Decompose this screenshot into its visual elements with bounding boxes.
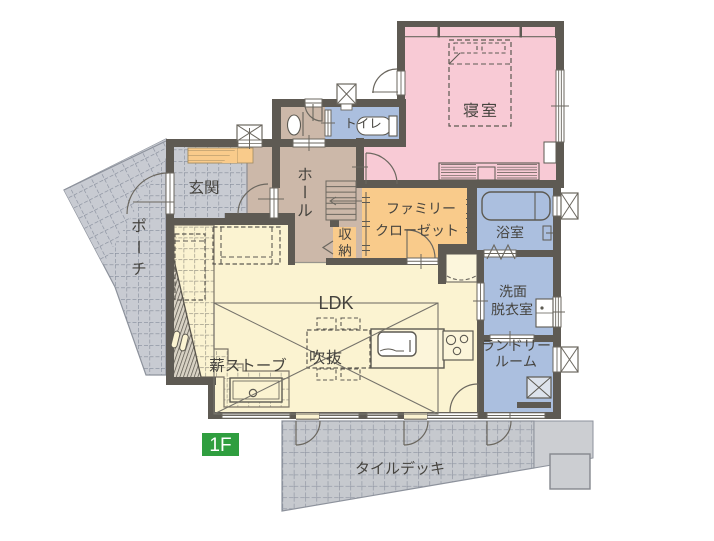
svg-text:LDK: LDK	[318, 293, 353, 313]
svg-text:1F: 1F	[209, 435, 231, 456]
